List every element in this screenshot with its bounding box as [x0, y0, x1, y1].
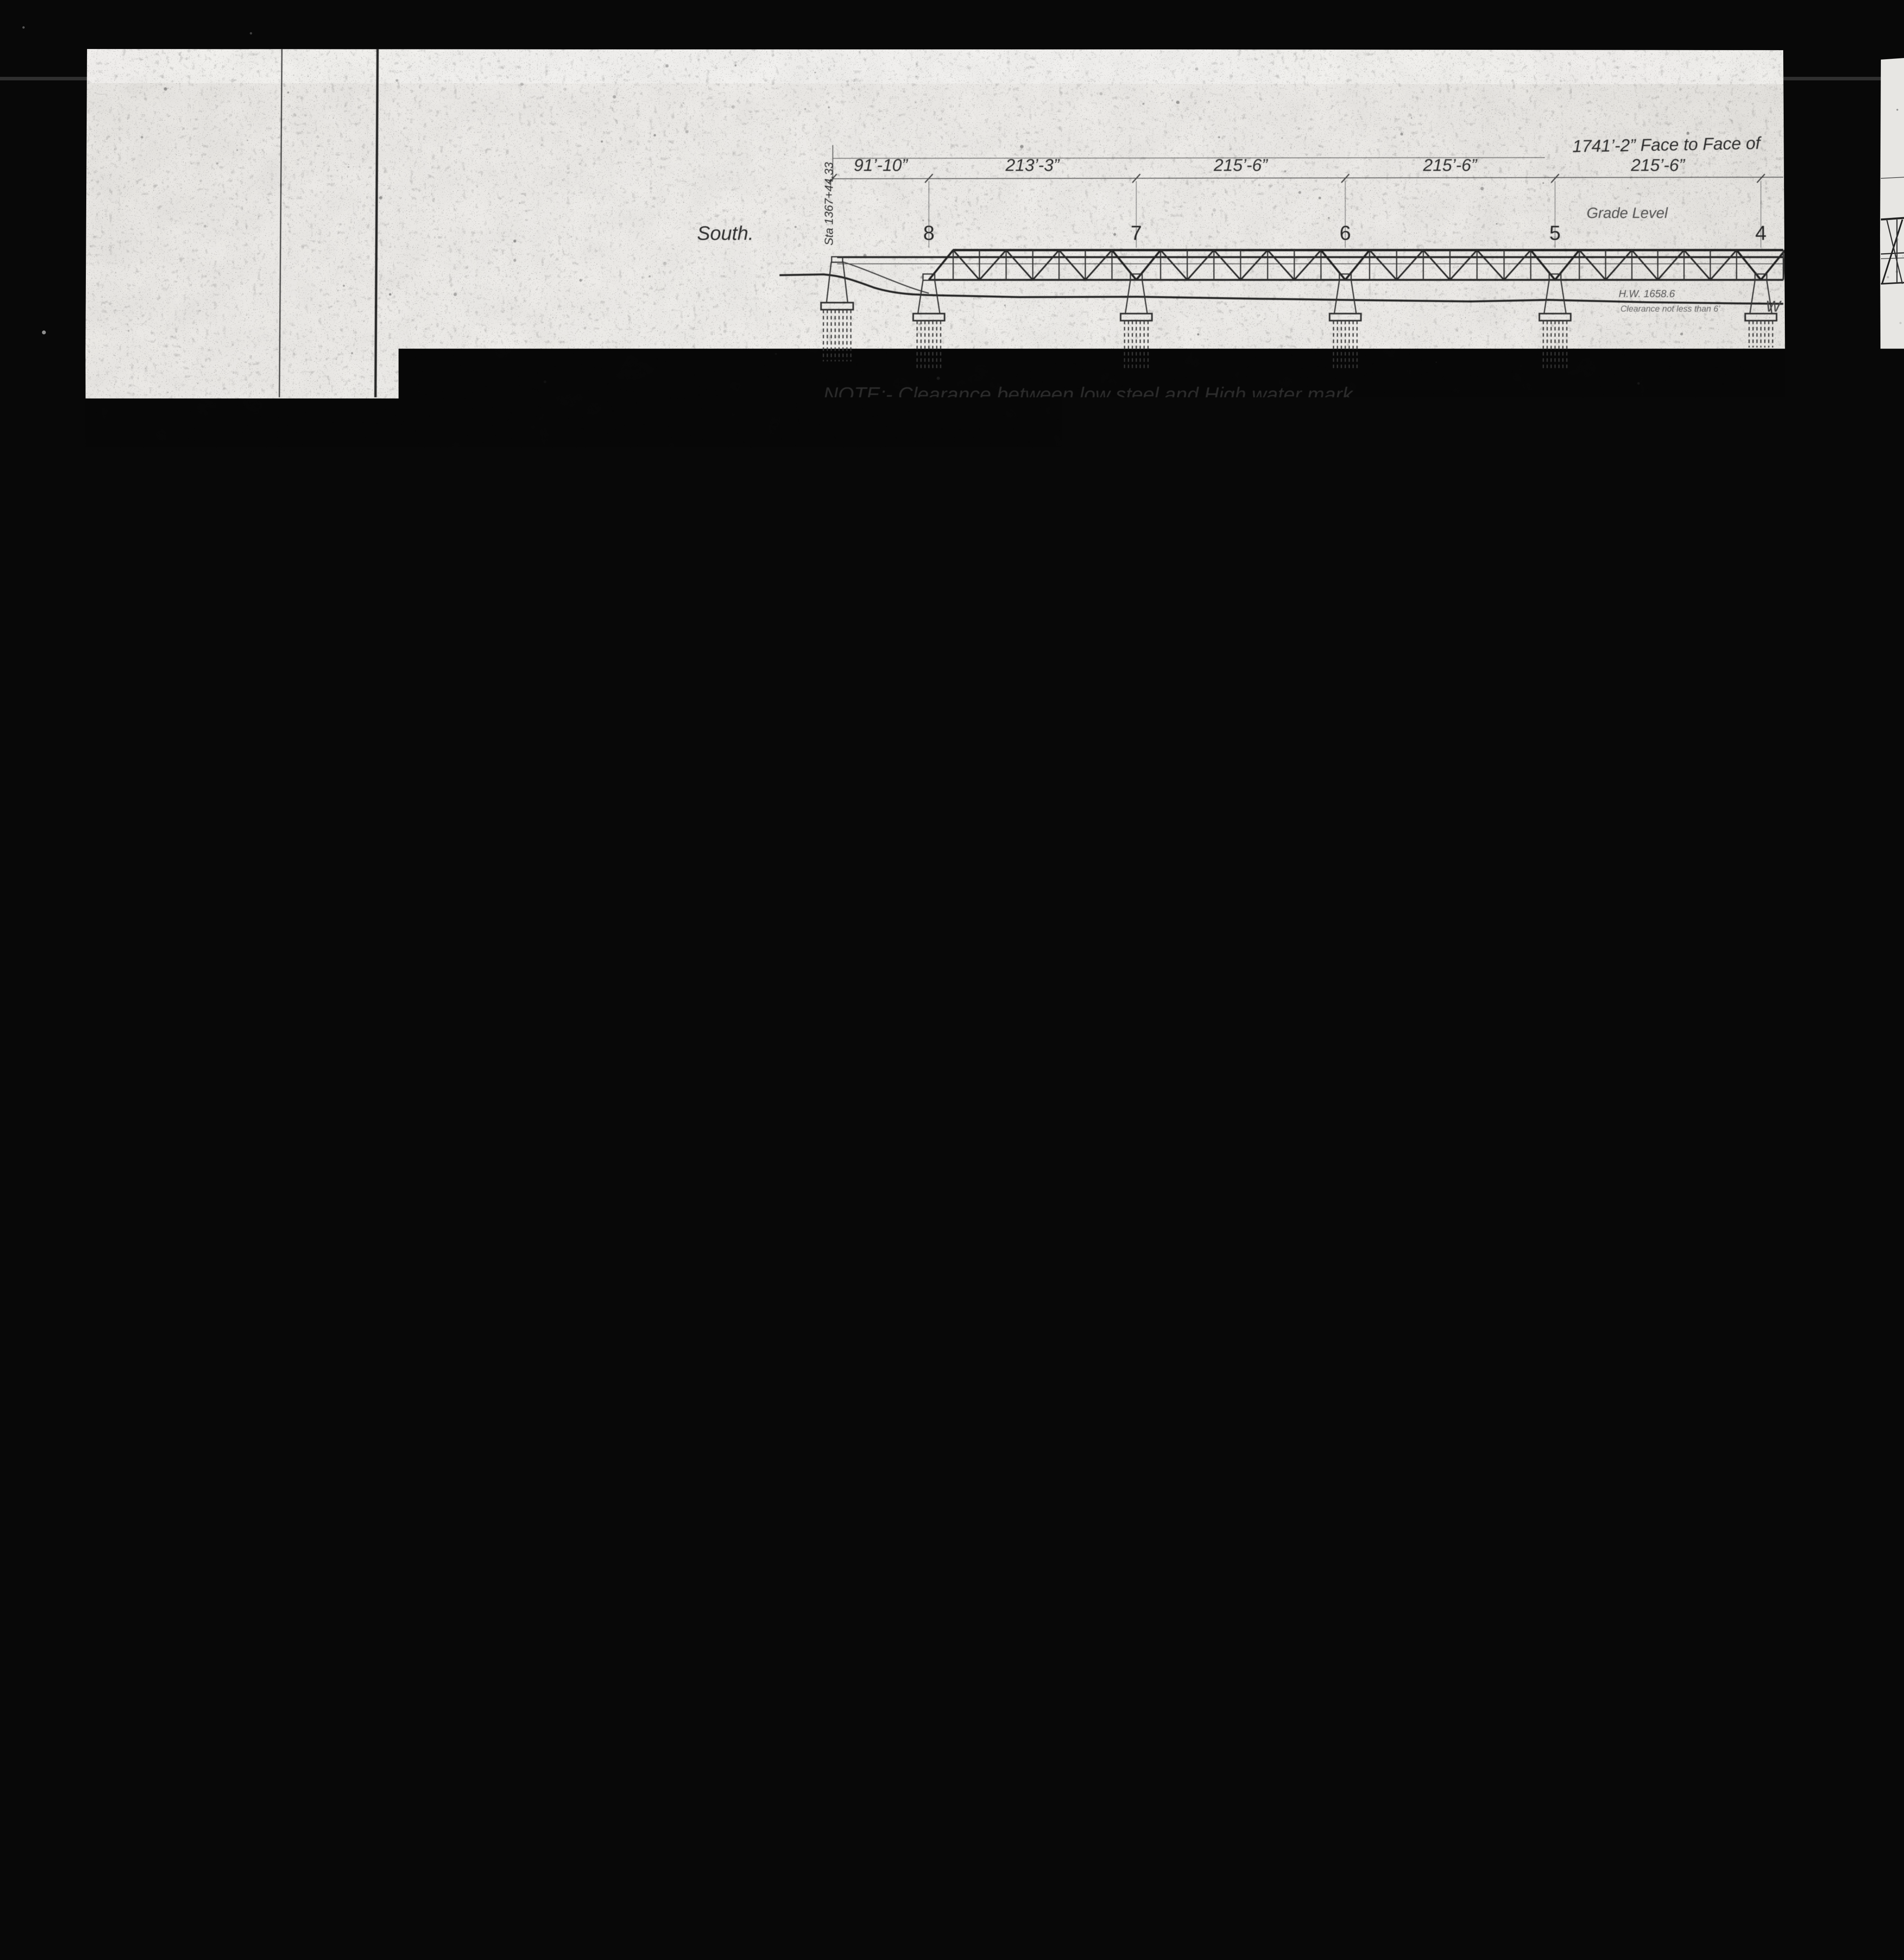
svg-text:3 of/de: 3 of/de — [1579, 1927, 1711, 1960]
svg-text:LE: LE — [1888, 1117, 1901, 1132]
svg-text:S: S — [1891, 1719, 1903, 1740]
